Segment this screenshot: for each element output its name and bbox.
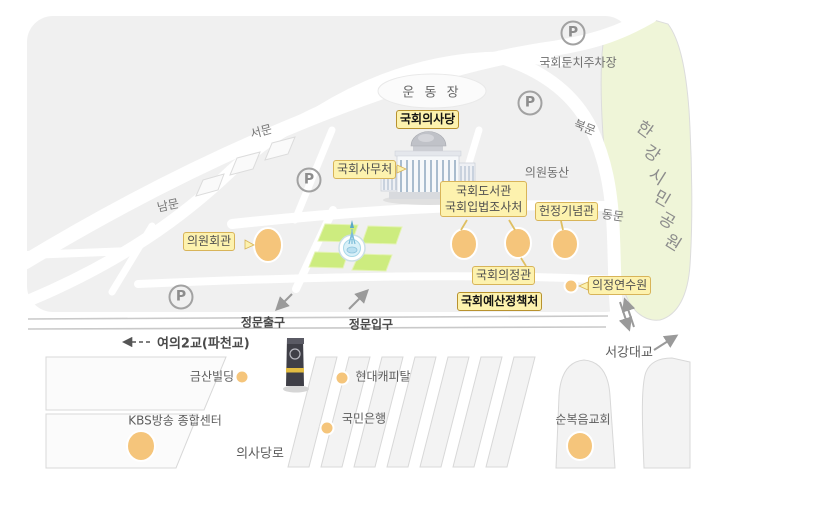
label-main-gate-entrance: 정문입구 (349, 316, 393, 333)
label-members-hall: 의원회관 (183, 232, 235, 251)
main-gate-monument (283, 338, 309, 393)
label-geumsan-building: 금산빌딩 (190, 368, 234, 385)
marker-hyundai (336, 372, 349, 385)
marker-members-hall (254, 228, 282, 262)
parking-icon: P (518, 91, 543, 116)
assembly-area-map: P P P P 운 동 장 국회둔치주차장 의원동산 정문출구 정문입구 여의2… (0, 0, 840, 525)
marker-geumsan (236, 371, 249, 384)
marker-gospel (567, 432, 593, 460)
label-secretariat: 국회사무처 (333, 160, 396, 179)
label-main-gate-exit: 정문출구 (241, 314, 285, 331)
label-memorial-hall: 헌정기념관 (535, 202, 598, 221)
label-library-line: 국회도서관 (445, 183, 522, 199)
label-budget-office: 국회예산정책처 (457, 292, 542, 311)
main-street-lines (28, 316, 608, 329)
label-riverside-parking: 국회둔치주차장 (539, 54, 616, 71)
label-training-institute: 의정연수원 (588, 276, 651, 295)
parking-icon: P (169, 285, 194, 310)
label-full-gospel-church: 순복음교회 (555, 411, 610, 428)
label-library-legislation: 국회도서관 국회입법조사처 (440, 181, 527, 217)
parking-icon: P (297, 168, 322, 193)
marker-library (451, 229, 477, 259)
label-legislation-line: 국회입법조사처 (445, 199, 522, 215)
marker-kbs (127, 431, 155, 461)
parking-icon: P (561, 21, 586, 46)
label-assembly-hall: 국회의사당 (396, 110, 459, 129)
label-members-hill: 의원동산 (525, 164, 569, 181)
label-hyundai-capital: 현대캐피탈 (355, 368, 410, 385)
label-kbs-center: KBS방송 종합센터 (128, 412, 222, 429)
label-stadium: 운 동 장 (402, 82, 461, 101)
label-uijeong-hall: 국회의정관 (472, 266, 535, 285)
label-uisadang-road: 의사당로 (236, 443, 284, 462)
gate-east-label: 동문 (601, 205, 625, 225)
map-artwork (0, 0, 840, 525)
marker-kookmin (321, 422, 334, 435)
label-kookmin-bank: 국민은행 (342, 410, 386, 427)
marker-training-institute (565, 280, 578, 293)
seogang-arrow (654, 336, 676, 350)
label-yeoui-bridge: 여의2교(파천교) (157, 333, 250, 352)
label-seogang-bridge: 서강대교 (605, 342, 653, 361)
marker-memorial-hall (552, 229, 578, 259)
marker-legislation-office (505, 228, 531, 258)
